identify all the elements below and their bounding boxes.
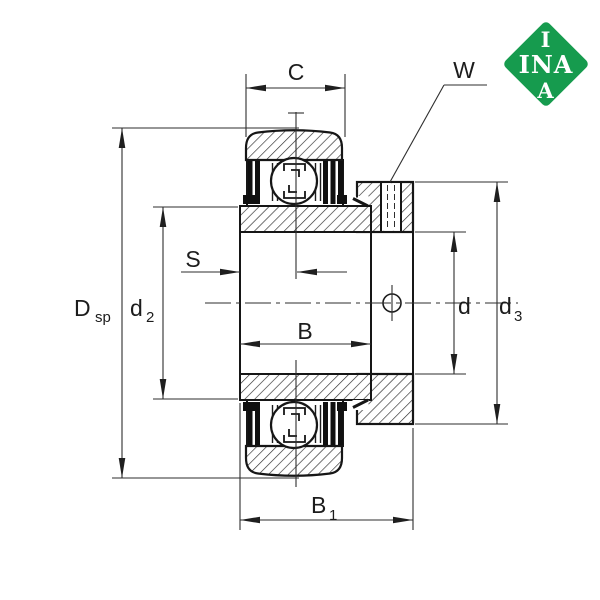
dim-label-W: W — [453, 57, 475, 83]
outer-ring-top — [246, 130, 342, 160]
ina-logo-line1: I — [541, 27, 552, 52]
dim-label-C: C — [288, 59, 305, 85]
ball-bottom — [271, 402, 317, 448]
dim-label-S: S — [185, 246, 200, 272]
ball-top — [271, 158, 317, 204]
ina-logo-line3: A — [536, 78, 554, 103]
dim-label-Dsp: D — [74, 295, 91, 321]
dim-label-d2-sub: 2 — [146, 309, 154, 326]
dim-label-B: B — [297, 318, 312, 344]
ina-logo-line2: INA — [519, 50, 574, 79]
dim-label-B1-sub: 1 — [329, 507, 337, 524]
dim-label-d: d — [458, 293, 471, 319]
inner-ring-top — [240, 206, 371, 232]
dim-label-Dsp-sub: sp — [95, 309, 111, 326]
dim-label-d3-sub: 3 — [514, 308, 522, 325]
dim-label-d2: d — [130, 295, 143, 321]
outer-ring-bottom — [246, 446, 342, 476]
collar-step-bottom — [353, 400, 369, 410]
dim-label-B1: B — [311, 492, 326, 518]
bearing-technical-drawing: C W S B B 1 D sp — [0, 0, 600, 600]
dim-label-d3: d — [499, 293, 512, 319]
inner-ring-bottom — [240, 374, 371, 400]
